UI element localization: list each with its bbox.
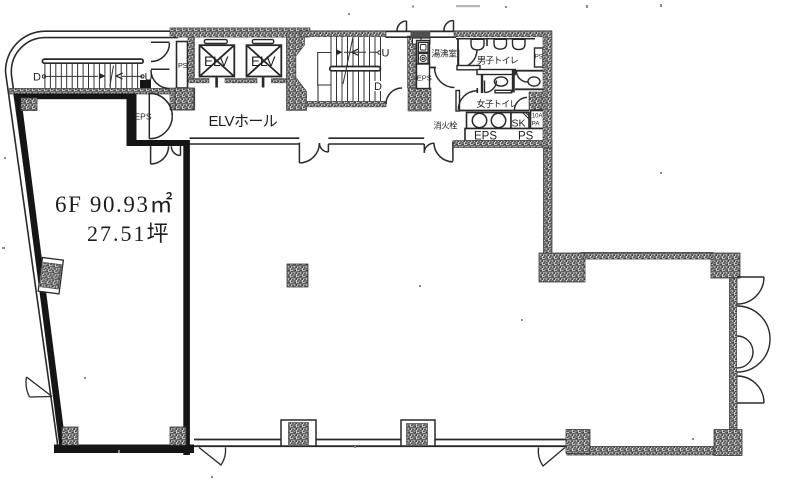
svg-text:PA: PA xyxy=(532,122,540,128)
svg-text:消火栓: 消火栓 xyxy=(434,121,459,131)
svg-text:6F 90.93㎡: 6F 90.93㎡ xyxy=(55,192,174,217)
svg-text:女子トイレ: 女子トイレ xyxy=(477,98,519,109)
svg-text:湯沸室: 湯沸室 xyxy=(432,48,458,59)
svg-text:ELVホール: ELVホール xyxy=(209,113,278,130)
svg-text:PS: PS xyxy=(535,55,543,61)
svg-text:PS: PS xyxy=(178,61,188,70)
svg-text:27.51坪: 27.51坪 xyxy=(87,221,171,246)
svg-text:U: U xyxy=(382,48,390,60)
svg-text:ELV: ELV xyxy=(251,54,276,69)
svg-text:D: D xyxy=(33,72,41,84)
svg-text:SK: SK xyxy=(512,118,526,130)
svg-text:EPS: EPS xyxy=(417,74,432,83)
svg-text:D: D xyxy=(374,81,382,93)
svg-text:10A: 10A xyxy=(532,114,543,120)
svg-text:ELV: ELV xyxy=(204,54,229,69)
svg-text:男子トイレ: 男子トイレ xyxy=(477,56,519,66)
